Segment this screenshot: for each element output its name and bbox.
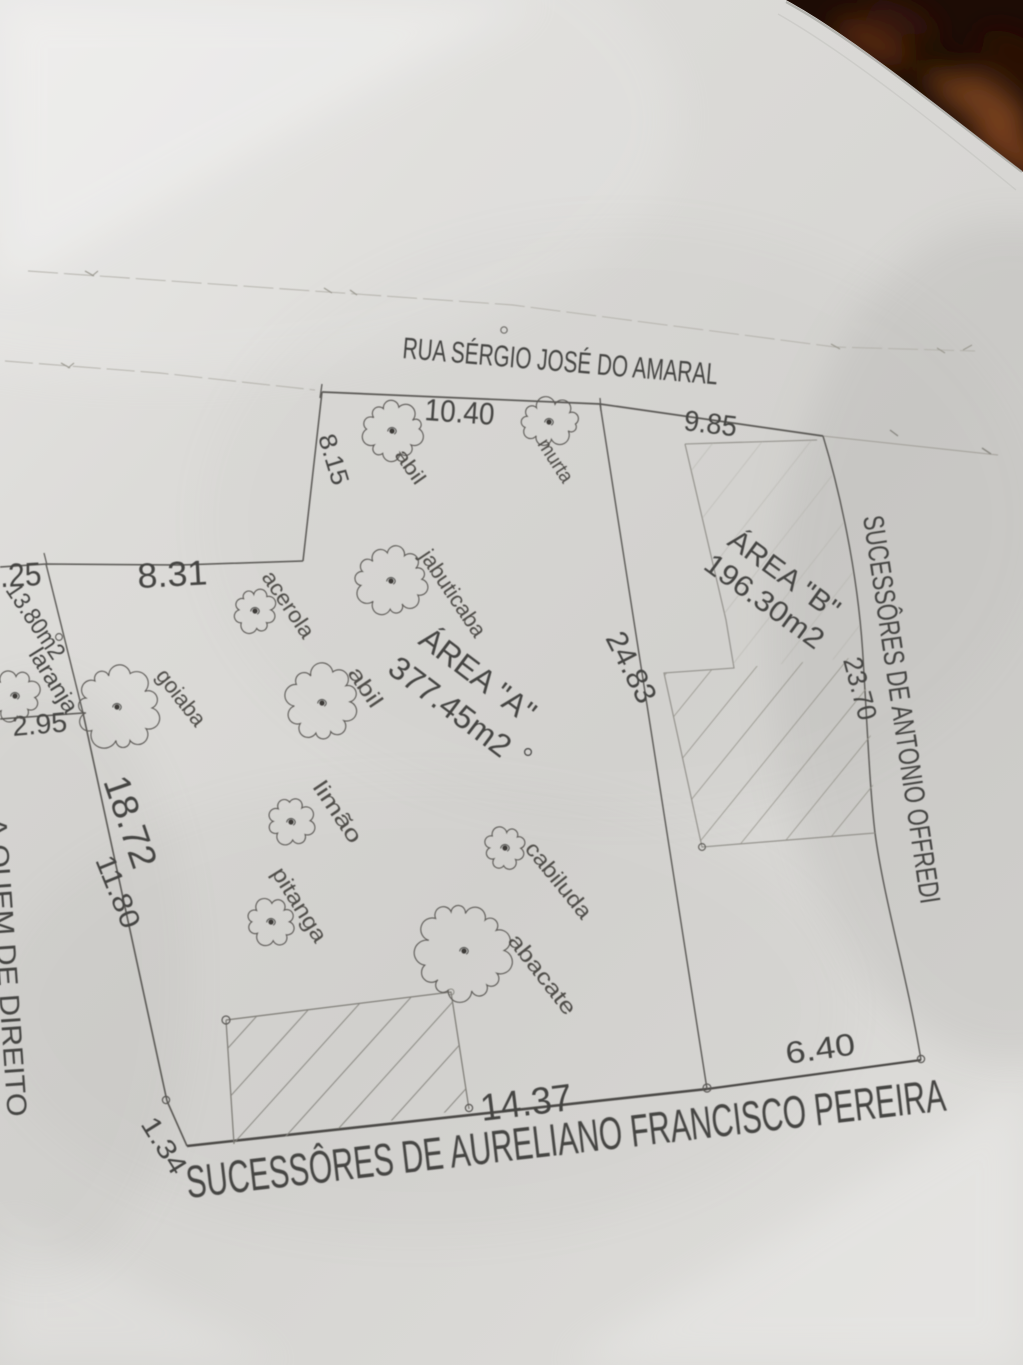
svg-text:9.85: 9.85 xyxy=(682,405,739,443)
svg-text:8.31: 8.31 xyxy=(136,553,208,596)
svg-text:10.40: 10.40 xyxy=(424,392,496,432)
svg-text:2.95: 2.95 xyxy=(11,706,68,742)
